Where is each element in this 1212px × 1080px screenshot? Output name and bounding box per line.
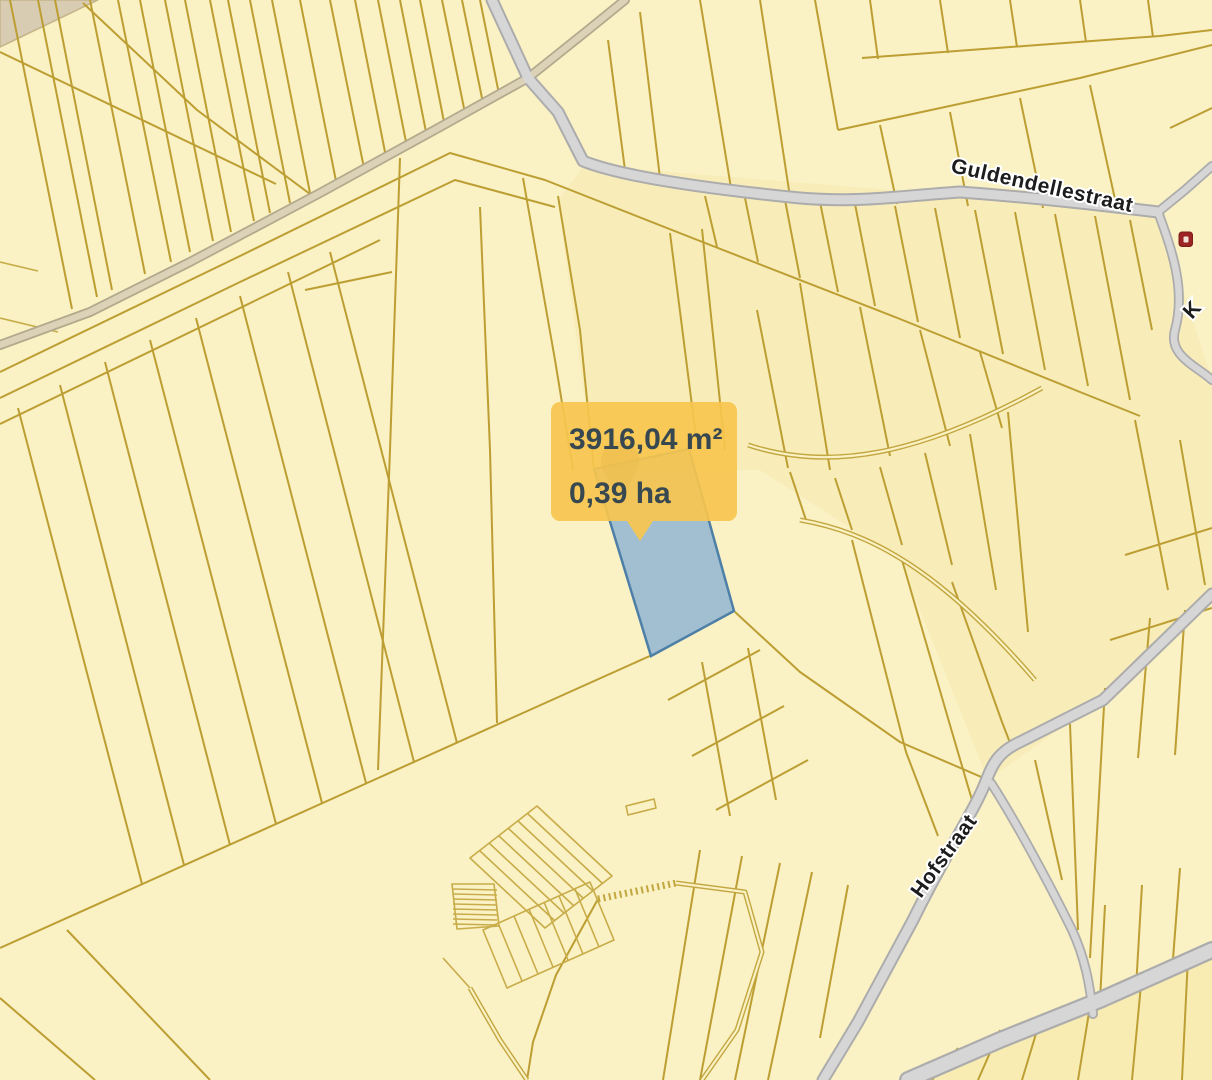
tooltip-area-m2: 3916,04 m²	[569, 423, 722, 456]
tooltip-area-ha: 0,39 ha	[569, 477, 671, 510]
area-tooltip: 3916,04 m² 0,39 ha	[551, 402, 737, 541]
poi-building-icon	[1179, 232, 1193, 247]
map-canvas[interactable]: Guldendellestraat Hofstraat K 3916,04 m²…	[0, 0, 1212, 1080]
